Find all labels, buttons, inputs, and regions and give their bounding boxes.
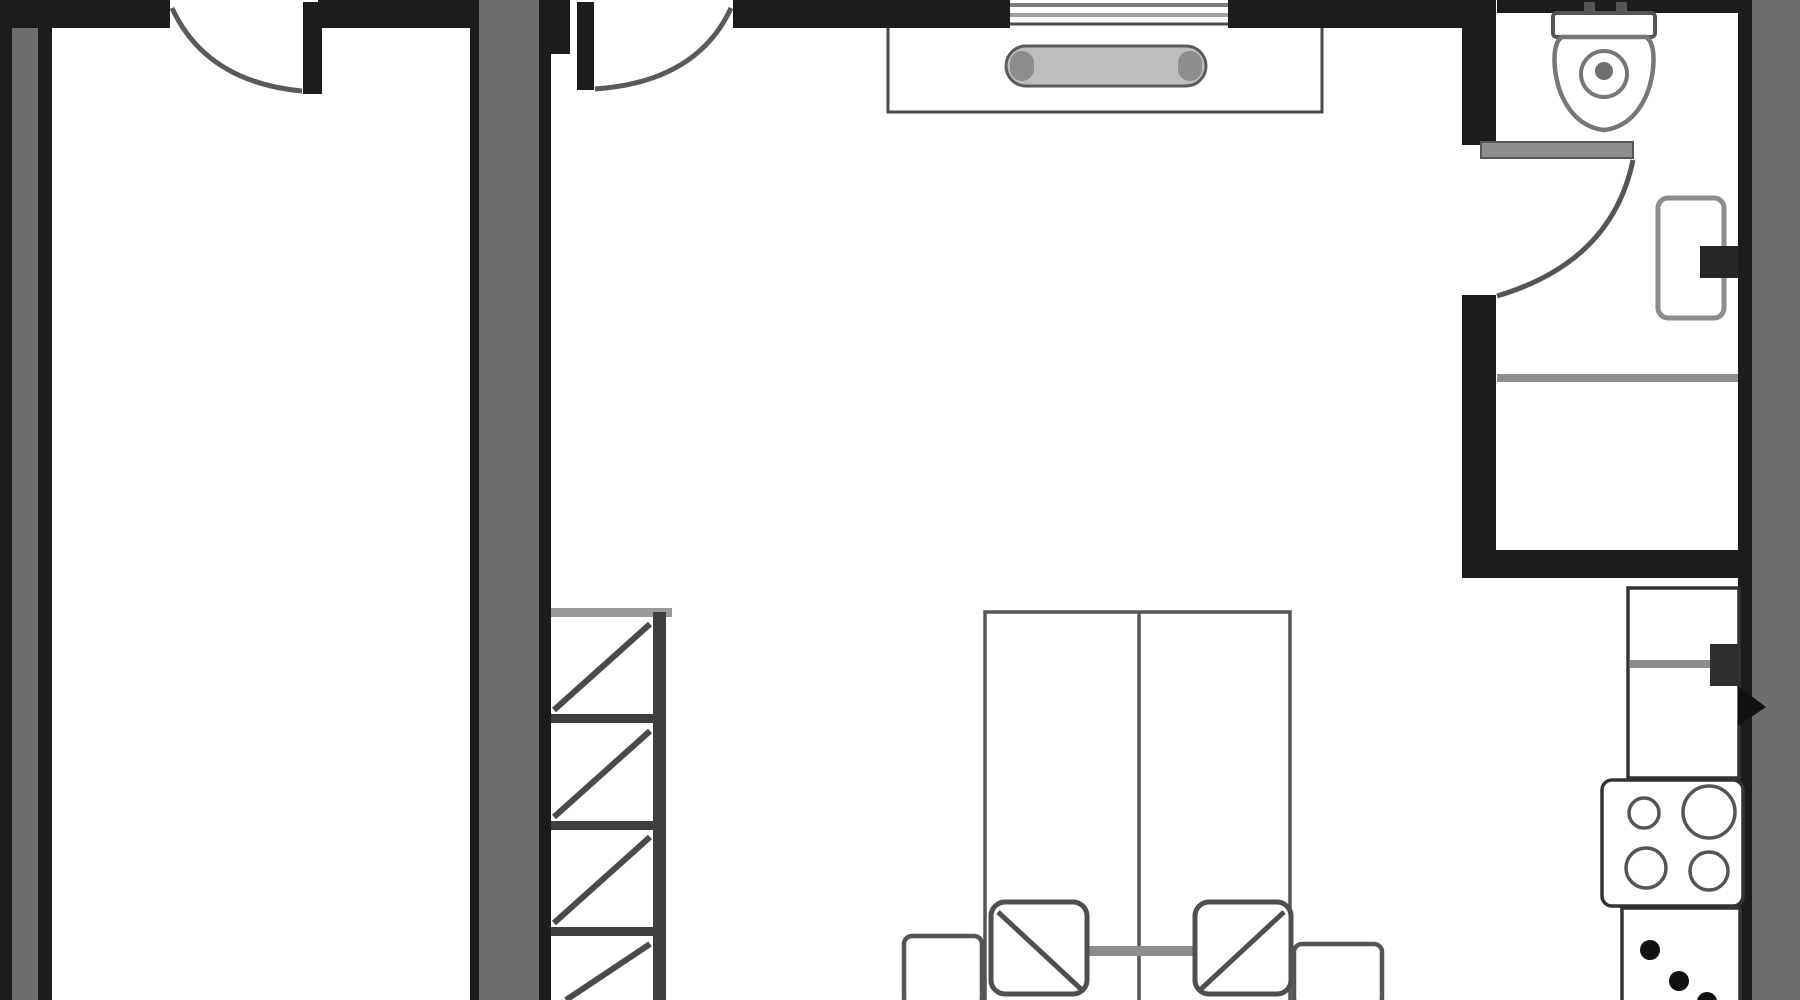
top-wall-segment-4 [1228,0,1462,28]
bathroom-bottom-wall [1462,550,1738,578]
top-wall-segment-2 [318,0,470,28]
sink-dot-1 [1640,940,1660,960]
nightstand-left [904,936,982,1000]
bathroom-wall-upper-left [1462,0,1496,145]
dresser-handle [1006,46,1206,86]
toilet-flush-dot [1595,62,1613,80]
bathroom-wall-lower-left [1462,295,1496,578]
stairs-rail [653,612,666,1000]
top-wall-segment-1 [0,0,170,28]
kitchen-counter-handle [1710,644,1738,686]
center-door-jamb [551,0,570,54]
center-wall-fill [479,0,539,1000]
bed-blanket-band [1085,946,1198,956]
toilet-hinge-left [1584,2,1595,13]
stove-burner-bottom-right [1690,852,1728,890]
floor-plan-screenshot [0,0,1800,1000]
door-center-leaf [577,2,594,90]
window-inner-line [1010,13,1228,17]
top-wall-segment-3 [733,0,1010,28]
kitchen-counter-divider [1630,660,1712,668]
bath-sink-faucet [1700,246,1738,278]
window-outer-line [1010,3,1228,7]
right-wall-fill [1752,0,1800,1000]
center-wall-right-edge [539,0,551,1000]
left-wall-inner-edge [38,0,52,1000]
floor-plan-drawing [0,0,1800,1000]
sink-dot-2 [1669,971,1689,991]
center-wall-left-edge [470,0,479,1000]
door-left-leaf [303,2,322,94]
stove-burner-bottom-left [1626,848,1666,888]
stairs-tread-3 [550,927,656,936]
left-wall-fill [12,0,38,1000]
bathroom-door-leaf [1481,142,1633,158]
stairs-tread-1 [550,714,656,723]
dresser-handle-cap-left [1010,51,1034,81]
stairs-tread-2 [550,821,656,830]
bath-shelf-line [1497,374,1738,382]
stove-burner-top-right [1683,786,1735,838]
left-wall-outer-edge [0,0,12,1000]
dresser-handle-cap-right [1178,51,1202,81]
toilet-tank [1553,13,1655,37]
nightstand-right [1294,944,1382,1000]
toilet-hinge-right [1616,2,1627,13]
stove-burner-top-left [1629,798,1659,828]
